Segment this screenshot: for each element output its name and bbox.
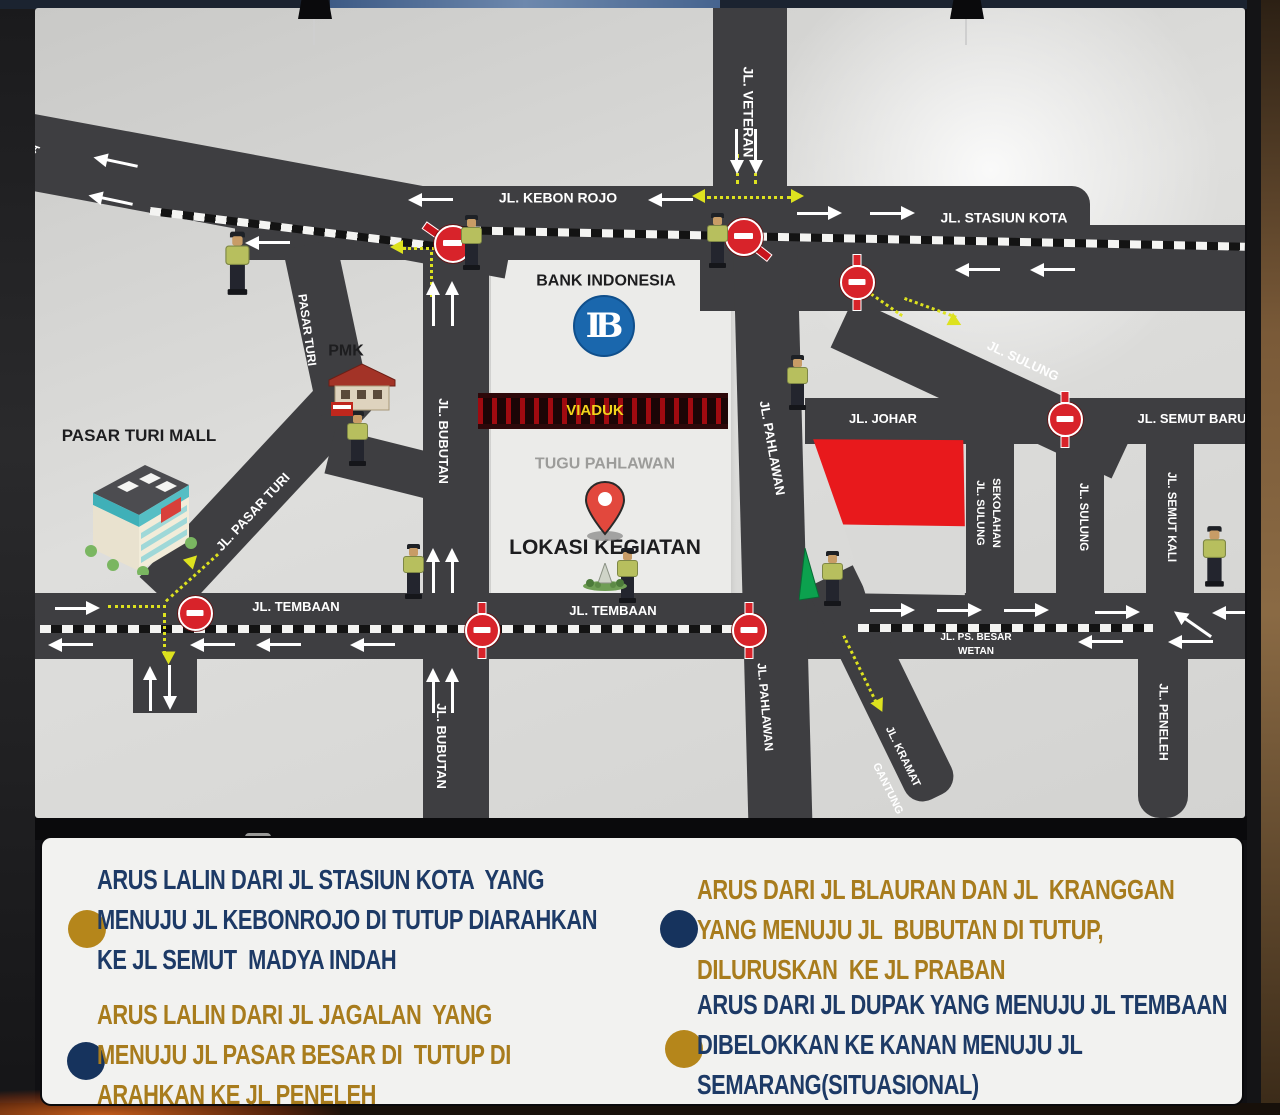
binder-clip-right bbox=[950, 0, 984, 19]
legend-line: MENUJU JL KEBONROJO DI TUTUP DIARAHKAN bbox=[97, 900, 597, 940]
legend-line: ARUS LALIN DARI JL JAGALAN YANG bbox=[97, 995, 511, 1035]
legend-line: YANG MENUJU JL BUBUTAN DI TUTUP, bbox=[697, 910, 1174, 950]
lane-direction-arrow bbox=[163, 665, 177, 711]
binder-clip-left bbox=[298, 0, 332, 19]
legend-line: DIBELOKKAN KE KANAN MENUJU JL bbox=[697, 1025, 1227, 1065]
lane-direction-arrow bbox=[1095, 605, 1141, 619]
bank-indonesia-logo: IB bbox=[573, 295, 635, 357]
green-flag-icon bbox=[799, 548, 821, 604]
diversion-arrow-head bbox=[692, 189, 705, 203]
legend-text-stasiun-kota-closure: ARUS LALIN DARI JL STASIUN KOTA YANGMENU… bbox=[97, 860, 738, 980]
diversion-dotted-path bbox=[707, 196, 791, 199]
traffic-police-icon bbox=[787, 355, 809, 413]
lane-direction-arrow bbox=[954, 263, 1000, 277]
lane-direction-arrow bbox=[143, 665, 157, 711]
map-label: JL. STASIUN KOTA bbox=[940, 211, 1067, 226]
kantor-gubernur-jatim-block bbox=[810, 436, 968, 600]
center-dash-line bbox=[40, 625, 752, 633]
lane-direction-arrow bbox=[47, 638, 93, 652]
panel-gap bbox=[35, 816, 1247, 840]
lane-direction-arrow bbox=[349, 638, 395, 652]
traffic-police-icon bbox=[461, 215, 483, 273]
legend-text-dupak-diversion: ARUS DARI JL DUPAK YANG MENUJU JL TEMBAA… bbox=[697, 985, 1280, 1105]
map-label: VIADUK bbox=[566, 403, 624, 419]
lane-direction-arrow bbox=[1029, 263, 1075, 277]
lane-direction-arrow bbox=[445, 280, 459, 326]
no-entry-sign bbox=[732, 613, 767, 648]
bank-indonesia-monogram: IB bbox=[592, 306, 617, 346]
legend-line: ARUS LALIN DARI JL STASIUN KOTA YANG bbox=[97, 860, 597, 900]
lane-direction-arrow bbox=[870, 603, 916, 617]
no-entry-sign bbox=[1048, 402, 1083, 437]
diversion-dotted-path bbox=[403, 247, 435, 250]
map-label: WETAN bbox=[958, 647, 994, 658]
map-label: SEKOLAHAN bbox=[989, 478, 1001, 548]
lane-direction-arrow bbox=[244, 236, 290, 250]
lane-direction-arrow bbox=[426, 547, 440, 593]
traffic-map-panel: JL. VETERANJL. KEBON ROJOJL. STASIUN KOT… bbox=[35, 8, 1245, 818]
legend-bullet-blauran-kranggan-closure bbox=[660, 910, 698, 948]
map-label: JL. SEMUT KALI bbox=[1165, 472, 1177, 562]
traffic-plan-poster: JL. VETERANJL. KEBON ROJOJL. STASIUN KOT… bbox=[0, 0, 1280, 1115]
pmk-building-icon bbox=[323, 358, 401, 420]
legend-line: ARAHKAN KE JL PENELEH bbox=[97, 1075, 511, 1115]
map-label: JL. BUBUTAN bbox=[436, 398, 450, 484]
stop-paddle-sign bbox=[725, 218, 761, 254]
background-left-strip bbox=[0, 0, 35, 1115]
binder-clip-left-wire bbox=[313, 19, 315, 45]
binder-clip-right-wire bbox=[965, 19, 967, 45]
lane-direction-arrow bbox=[1211, 606, 1245, 620]
map-label: JL. BUBUTAN bbox=[434, 703, 448, 789]
legend-line: KE JL SEMUT MADYA INDAH bbox=[97, 940, 597, 980]
traffic-police-icon bbox=[225, 232, 250, 299]
map-label: JL. SULUNG bbox=[1077, 483, 1089, 551]
lane-direction-arrow bbox=[647, 193, 693, 207]
lane-direction-arrow bbox=[1004, 603, 1050, 617]
diversion-arrow-head bbox=[390, 240, 403, 254]
lane-direction-arrow bbox=[255, 638, 301, 652]
lane-direction-arrow bbox=[445, 547, 459, 593]
map-label: JL. PENELEH bbox=[1157, 683, 1170, 760]
lane-direction-arrow bbox=[870, 206, 916, 220]
pasar-turi-mall-icon bbox=[83, 453, 201, 575]
lane-direction-arrow bbox=[426, 280, 440, 326]
diversion-arrow-head bbox=[791, 189, 804, 203]
legend-text-jagalan-closure: ARUS LALIN DARI JL JAGALAN YANGMENUJU JL… bbox=[97, 995, 628, 1115]
legend-line: DILURUSKAN KE JL PRABAN bbox=[697, 950, 1174, 990]
map-label: JL. KEBON ROJO bbox=[499, 191, 617, 206]
legend-text-blauran-kranggan-closure: ARUS DARI JL BLAURAN DAN JL KRANGGANYANG… bbox=[697, 870, 1280, 990]
legend-line: ARUS DARI JL DUPAK YANG MENUJU JL TEMBAA… bbox=[697, 985, 1227, 1025]
map-label: JL. PS. BESAR bbox=[940, 633, 1011, 644]
lane-direction-arrow bbox=[797, 206, 843, 220]
map-label: JL. TEMBAAN bbox=[252, 600, 339, 614]
location-pin-icon bbox=[580, 480, 630, 542]
map-label: JL. VETERAN bbox=[741, 66, 756, 157]
diversion-dotted-path bbox=[108, 605, 166, 608]
map-label: JL. SEMUT BARU bbox=[1137, 412, 1245, 426]
lane-direction-arrow bbox=[55, 601, 101, 615]
lane-direction-arrow bbox=[189, 638, 235, 652]
traffic-police-icon bbox=[403, 544, 425, 602]
legend-line: ARUS DARI JL BLAURAN DAN JL KRANGGAN bbox=[697, 870, 1174, 910]
legend-line: SEMARANG(SITUASIONAL) bbox=[697, 1065, 1227, 1105]
diversion-dotted-path bbox=[163, 613, 166, 655]
lane-direction-arrow bbox=[937, 603, 983, 617]
no-entry-sign bbox=[840, 265, 875, 300]
map-label: JL. SULUNG bbox=[973, 480, 985, 545]
traffic-police-icon bbox=[1203, 526, 1227, 590]
no-entry-sign bbox=[465, 613, 500, 648]
map-label: JL. TEMBAAN bbox=[569, 604, 656, 618]
map-label: JL. JOHAR bbox=[849, 412, 917, 426]
no-entry-sign bbox=[178, 596, 213, 631]
lane-direction-arrow bbox=[1077, 635, 1123, 649]
monument-icon bbox=[580, 563, 630, 591]
map-label: PASAR TURI MALL bbox=[62, 427, 217, 445]
legend-panel: ARUS LALIN DARI JL STASIUN KOTA YANGMENU… bbox=[42, 838, 1242, 1104]
lane-direction-arrow bbox=[407, 193, 453, 207]
diversion-arrow-head bbox=[162, 652, 176, 665]
map-label: BANK INDONESIA bbox=[536, 274, 676, 291]
legend-line: MENUJU JL PASAR BESAR DI TUTUP DI bbox=[97, 1035, 511, 1075]
map-label: TUGU PAHLAWAN bbox=[535, 457, 675, 474]
traffic-police-icon bbox=[707, 213, 729, 271]
